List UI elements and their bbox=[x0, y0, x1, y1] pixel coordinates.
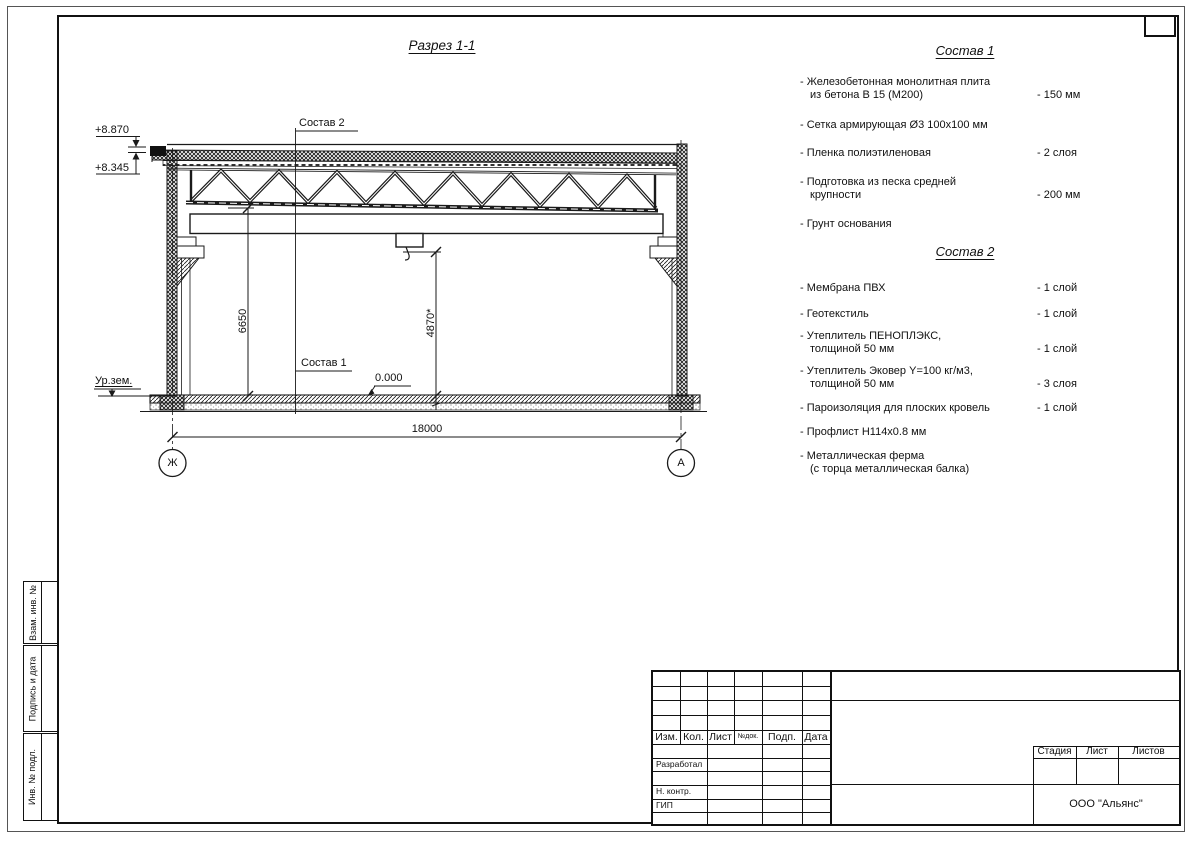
drawing-sheet: Разрез 1-1 Состав 2 Состав 1 +8.870 +8.3… bbox=[0, 0, 1191, 842]
item-value: - 1 слой bbox=[1037, 282, 1077, 295]
item-value: - 1 слой bbox=[1037, 402, 1077, 415]
stamp-divider bbox=[41, 734, 42, 820]
stamp-divider bbox=[41, 582, 42, 643]
hook bbox=[405, 247, 409, 260]
tb-header-data: Дата bbox=[802, 730, 830, 744]
item-name: - Геотекстиль bbox=[800, 308, 1130, 321]
sostav1-title: Состав 1 bbox=[800, 44, 1130, 57]
ground-label: Ур.зем. bbox=[95, 375, 132, 387]
tb-header-list: Лист bbox=[707, 730, 734, 744]
tb-role-gip: ГИП bbox=[653, 799, 710, 812]
dim-height-label: 6650 bbox=[237, 297, 249, 345]
level-floor-label: 0.000 bbox=[375, 372, 403, 384]
item-value: - 3 слоя bbox=[1037, 378, 1077, 391]
level-mark-top bbox=[96, 137, 146, 148]
item-value: - 150 мм bbox=[1037, 89, 1080, 102]
sostav1-callout-label: Состав 1 bbox=[301, 357, 347, 369]
stamp-label: Инв. № подл. bbox=[28, 749, 38, 805]
item-value: - 200 мм bbox=[1037, 189, 1080, 202]
company-name: ООО "Альянс" bbox=[1033, 784, 1179, 824]
axis-left-label: Ж bbox=[160, 457, 186, 469]
item-name: - Подготовка из песка средней крупности bbox=[800, 176, 1130, 202]
eaves-cap bbox=[150, 146, 166, 156]
stamp-podpis-data: Подпись и дата bbox=[23, 645, 58, 732]
title-block: Изм. Кол. Лист №док. Подп. Дата Разработ… bbox=[651, 670, 1181, 826]
tb-role-razrabotal: Разработал bbox=[653, 758, 710, 771]
floor bbox=[98, 395, 707, 412]
list-item: - Грунт основания bbox=[800, 218, 1130, 231]
right-corbel bbox=[650, 237, 677, 286]
list-item: - Подготовка из песка средней крупности … bbox=[800, 176, 1130, 202]
stamp-vzam-inv: Взам. инв. № bbox=[23, 581, 58, 644]
level-top-label: +8.870 bbox=[95, 124, 129, 136]
crane-beam bbox=[190, 214, 663, 260]
list-item: - Пленка полиэтиленовая - 2 слоя bbox=[800, 147, 1130, 160]
item-name: - Мембрана ПВХ bbox=[800, 282, 1130, 295]
item-value: - 2 слоя bbox=[1037, 147, 1077, 160]
left-foundation bbox=[160, 395, 184, 410]
item-name: - Утеплитель ПЕНОПЛЭКС, толщиной 50 мм bbox=[800, 330, 1130, 356]
axis-right-label: А bbox=[668, 457, 694, 469]
list-item: - Утеплитель ПЕНОПЛЭКС, толщиной 50 мм -… bbox=[800, 330, 1130, 356]
left-column bbox=[167, 151, 177, 396]
item-name: - Пленка полиэтиленовая bbox=[800, 147, 1130, 160]
tb-stage: Стадия bbox=[1033, 746, 1076, 758]
tb-header-izm: Изм. bbox=[653, 730, 680, 744]
dim-span-label: 18000 bbox=[396, 423, 458, 435]
monorail-box bbox=[396, 234, 423, 248]
list-item: - Железобетонная монолитная плита из бет… bbox=[800, 76, 1130, 102]
tb-header-kol: Кол. bbox=[680, 730, 707, 744]
item-name: - Железобетонная монолитная плита из бет… bbox=[800, 76, 1130, 102]
sostav2-callout-label: Состав 2 bbox=[299, 117, 345, 129]
item-name: - Утеплитель Эковер Y=100 кг/м3, толщино… bbox=[800, 365, 1130, 391]
roof-assembly bbox=[150, 145, 679, 169]
stamp-inv-podl: Инв. № подл. bbox=[23, 733, 58, 821]
tb-sheet: Лист bbox=[1076, 746, 1118, 758]
list-item: - Пароизоляция для плоских кровель - 1 с… bbox=[800, 402, 1130, 415]
columns bbox=[167, 144, 687, 396]
sostav2-title: Состав 2 bbox=[800, 245, 1130, 258]
right-column bbox=[677, 144, 687, 396]
item-name: - Профлист Н114х0.8 мм bbox=[800, 426, 1130, 439]
item-name: - Металлическая ферма (с торца металличе… bbox=[800, 450, 1130, 476]
item-name: - Грунт основания bbox=[800, 218, 1130, 231]
dim-hook-label: 4870* bbox=[425, 299, 437, 347]
list-item: - Утеплитель Эковер Y=100 кг/м3, толщино… bbox=[800, 365, 1130, 391]
list-item: - Геотекстиль - 1 слой bbox=[800, 308, 1130, 321]
level-eaves-label: +8.345 bbox=[95, 162, 129, 174]
material-lists: Состав 1 - Железобетонная монолитная пли… bbox=[800, 0, 1130, 520]
tb-sheets: Листов bbox=[1118, 746, 1179, 758]
item-name: - Пароизоляция для плоских кровель bbox=[800, 402, 1130, 415]
drawing-title: Разрез 1-1 bbox=[395, 38, 489, 53]
list-item: - Сетка армирующая Ø3 100х100 мм bbox=[800, 119, 1130, 132]
stamp-divider bbox=[41, 646, 42, 731]
tb-header-ndok: №док. bbox=[734, 730, 762, 744]
item-name: - Сетка армирующая Ø3 100х100 мм bbox=[800, 119, 1130, 132]
tb-role-nkontr: Н. контр. bbox=[653, 785, 710, 798]
stamp-label: Взам. инв. № bbox=[28, 585, 38, 641]
left-corbel bbox=[177, 237, 204, 286]
tb-header-podp: Подп. bbox=[762, 730, 802, 744]
list-item: - Металлическая ферма (с торца металличе… bbox=[800, 450, 1130, 476]
list-item: - Профлист Н114х0.8 мм bbox=[800, 426, 1130, 439]
stamp-label: Подпись и дата bbox=[28, 656, 38, 721]
item-value: - 1 слой bbox=[1037, 343, 1077, 356]
truss bbox=[168, 169, 676, 211]
list-item: - Мембрана ПВХ - 1 слой bbox=[800, 282, 1130, 295]
item-value: - 1 слой bbox=[1037, 308, 1077, 321]
